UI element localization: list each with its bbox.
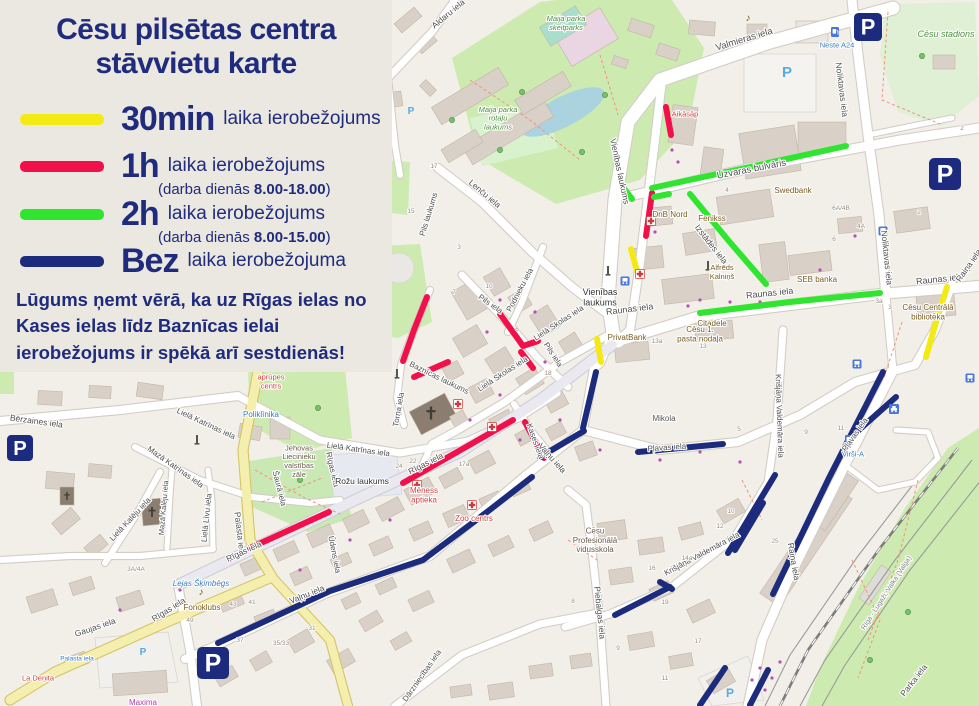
poi-label: PrivatBank [608,333,648,342]
house-number-label: 13 [699,343,707,350]
house-number-label: 4 [725,187,729,194]
house-number-label: 2 [960,125,964,132]
house-number-label: 6 [515,326,519,333]
poi-label: Maxima [129,698,158,706]
poi-label: SEB banka [797,275,838,284]
legend-item-bez: Bez laika ierobežojuma [20,241,346,281]
parking-p-icon: P [197,647,229,679]
poi-label: Palasta iela [60,655,94,662]
title-line-1: Cēsu pilsētas centra [56,13,336,46]
poi-label: Cēsu [586,526,605,535]
legend-bez-label: laika ierobežojuma [187,250,345,272]
house-number-label: 11 [662,675,669,682]
pharmacy-cross-icon [636,270,645,279]
parking-segment-2h [654,194,669,197]
house-number-label: 3a [875,298,883,305]
house-number-label: 5 [737,426,741,433]
poi-label: Fonoklubs [184,603,221,612]
house-number-label: 35/33 [273,640,290,647]
parking-p-icon: P [854,13,882,41]
legend-1h-value: 1h [121,147,159,186]
house-number-label: 37 [236,637,244,644]
poi-label: zāle [292,470,306,479]
poi-label: Mēness [410,486,438,495]
house-number-label: 12 [716,523,724,530]
house-number-label: 16 [648,565,656,572]
house-number-label: 8 [571,598,575,605]
poi-label: laukums [583,297,617,307]
poi-label: centrs [261,381,282,390]
parking-lot-p-mark: P [408,106,415,117]
poi-label: Rožu laukums [335,476,389,486]
house-number-label: 24 [395,463,403,470]
poi-label: Alfrēds [710,263,734,272]
title-line-2: stāvvietu karte [95,47,296,80]
legend-swatch-2h-icon [20,209,104,220]
parking-lot-p-mark: P [726,686,734,700]
svg-text:P: P [861,15,876,40]
legend-2h-value: 2h [121,195,159,234]
music-note-icon: ♪ [746,13,751,24]
house-number-label: 43 [229,601,237,608]
house-number-label: 15 [407,208,415,215]
house-number-label: 2 [917,209,921,216]
parking-p-icon: P [7,435,33,461]
parking-segment-30min [597,339,601,362]
poi-label: Maija parka [479,105,518,114]
house-number-label: 17 [430,163,438,170]
svg-text:P: P [13,438,27,460]
house-number-label: 18 [544,370,552,377]
taxi-stand-icon [889,404,899,414]
poi-label: Poliklīnika [243,410,280,419]
legend-panel: Cēsu pilsētas centra stāvvietu karte 30m… [0,0,392,372]
parking-p-icon: P [929,158,961,190]
poi-label: Maija parka [547,14,586,23]
svg-text:P: P [205,650,222,678]
poi-label: Liecinieku [282,452,315,461]
poi-label: Swedbank [774,186,812,195]
house-number-label: 11 [838,425,845,432]
parking-map-poster: PPPPPPPP♪♪Valmieras ielaAldaru ielaNolik… [0,0,979,706]
house-number-label: 6 [832,236,836,243]
legend-bez-value: Bez [121,242,178,281]
pharmacy-cross-icon [454,400,463,409]
house-number-label: 6A/4B [832,205,850,212]
house-number-label: 17 [694,638,702,645]
house-number-label: 4A [857,223,866,230]
house-number-label: 13a [652,338,663,345]
bus-stop-icon [966,374,975,383]
poi-label: valstības [284,461,314,470]
parking-lot-p-mark: P [140,647,147,658]
poi-label: bibliotēka [911,313,945,322]
legend-item-30min: 30min laika ierobežojums [20,99,381,139]
pharmacy-cross-icon [468,501,477,510]
poi-label: vidusskola [576,545,614,554]
poi-label: DnB Nord [652,210,687,219]
legend-swatch-bez-icon [20,256,104,267]
poi-label: aptieka [411,496,437,505]
house-number-label: 10 [485,283,493,290]
parking-lot-p-mark: P [782,64,792,81]
poi-label: Cēsu 1. [686,325,714,334]
legend-item-1h: 1h laika ierobežojums [20,146,325,186]
poi-label: Profesionālā [573,536,618,545]
legend-30min-value: 30min [121,100,214,139]
legend-1h-hours-post: ) [326,181,331,198]
house-number-label: 9 [616,645,620,652]
house-number-label: 3A/4A [127,566,145,573]
house-number-label: 25 [771,538,779,545]
legend-note: Lūgums ņemt vērā, ka uz Rīgas ielas no K… [16,287,376,366]
pharmacy-cross-icon [488,423,497,432]
legend-swatch-1h-icon [20,161,104,172]
poi-label: Fenikss [698,214,726,223]
poi-label: Vienības [583,287,618,297]
house-number-label: 41 [248,599,256,606]
house-number-label: 17a [459,461,470,468]
house-number-label: 31 [308,625,316,632]
music-note-icon: ♪ [199,587,204,598]
legend-swatch-30min-icon [20,114,104,125]
svg-text:P: P [937,161,954,189]
poi-label: Virši-A [842,450,864,459]
house-number-label: 10 [727,508,735,515]
house-number-label: 19 [661,599,669,606]
poi-label: rotaļu [489,114,509,123]
legend-30min-label: laika ierobežojums [223,108,380,130]
legend-1h-label: laika ierobežojums [168,155,325,177]
poi-label: laukums [484,122,512,131]
house-number-label: 14a [682,555,693,562]
poi-label: Kalniņš [710,272,735,281]
house-number-label: 7 [452,289,456,296]
poi-label: Cēsu Centrālā [902,303,954,312]
poi-label: Jehovas [285,443,313,452]
bus-stop-icon [853,360,862,369]
poi-label: Neste A24 [820,41,855,50]
legend-2h-label: laika ierobežojums [168,203,325,225]
house-number-label: 22 [409,458,417,465]
page-title: Cēsu pilsētas centra stāvvietu karte [6,13,386,80]
poi-label: Mikola [652,414,676,423]
poi-label: aprūpes [257,373,284,382]
poi-label: skeitparks [549,23,583,32]
poi-label: La Deņita [22,674,55,683]
house-number-label: 49 [186,617,194,624]
poi-label: Lejas Šķimbēgs [173,579,229,588]
house-number-label: 3 [457,244,461,251]
poi-label: Zoo centrs [455,514,493,523]
house-number-label: 9 [804,429,808,436]
fuel-station-icon [831,27,839,37]
poi-label: Cēsu stadions [917,29,975,39]
poi-label: Aikāsāp [672,110,699,119]
bus-stop-icon [621,277,630,286]
house-number-label: 3 [888,304,892,311]
legend-item-2h: 2h laika ierobežojums [20,194,325,234]
